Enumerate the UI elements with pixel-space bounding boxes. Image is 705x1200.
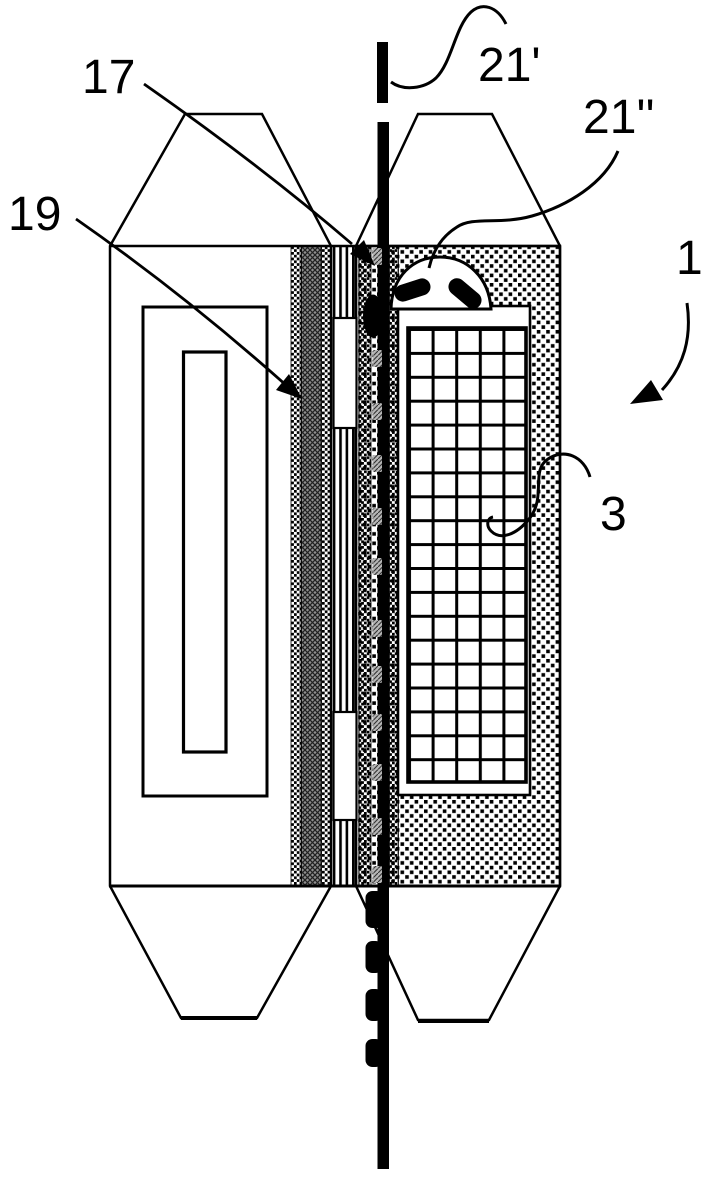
label-3: 3 xyxy=(600,488,627,541)
label-19: 19 xyxy=(8,188,61,241)
strip-dotted-c xyxy=(359,246,371,886)
mesh-grid xyxy=(408,328,526,782)
figure-canvas: 17 19 21' 21'' 1 3 xyxy=(0,0,705,1200)
strip-crosshatch xyxy=(302,246,322,886)
label-21-double-prime: 21'' xyxy=(583,91,655,144)
arrowhead-1 xyxy=(630,380,663,404)
patent-figure: 17 19 21' 21'' 1 3 xyxy=(0,0,705,1200)
left-window-inner xyxy=(184,352,227,752)
label-21-prime: 21' xyxy=(478,39,541,92)
leader-1 xyxy=(662,303,688,390)
strip-window-upper xyxy=(334,318,357,428)
strip-window-lower xyxy=(334,712,357,820)
strip-dotted-a xyxy=(291,246,301,886)
thread-bulge xyxy=(363,295,383,338)
label-17: 17 xyxy=(82,51,135,104)
thread-top-segment xyxy=(377,42,388,103)
strip-dotted-b xyxy=(322,246,332,886)
label-1: 1 xyxy=(676,232,703,285)
